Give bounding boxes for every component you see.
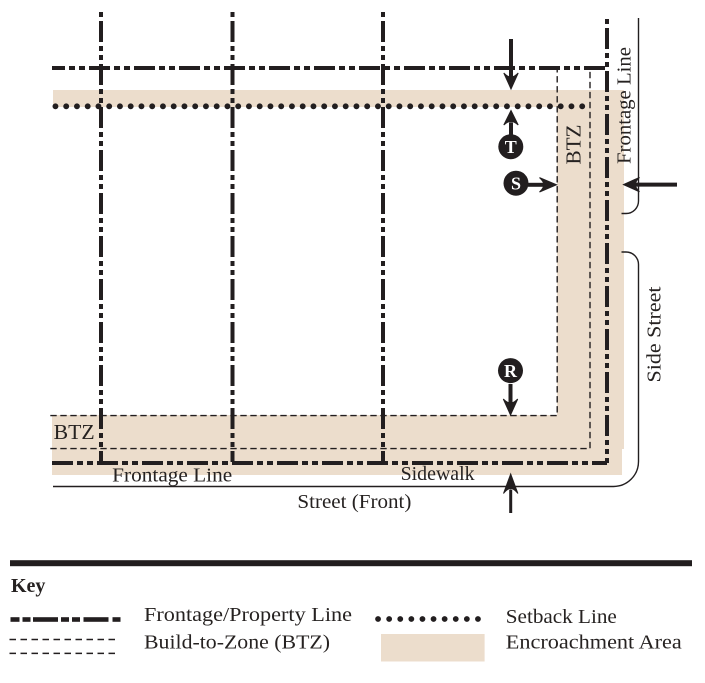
svg-text:R: R [504,361,518,381]
svg-text:Setback Line: Setback Line [506,606,617,628]
svg-text:BTZ: BTZ [54,420,95,444]
svg-text:Build-to-Zone (BTZ): Build-to-Zone (BTZ) [144,632,330,654]
svg-text:Encroachment Area: Encroachment Area [506,632,682,654]
svg-text:Key: Key [11,575,45,597]
svg-text:Frontage Line: Frontage Line [112,465,232,487]
svg-text:Sidewalk: Sidewalk [401,463,475,485]
svg-text:T: T [505,137,517,157]
svg-text:BTZ: BTZ [562,125,586,165]
svg-text:Side Street: Side Street [644,286,666,382]
svg-text:S: S [511,174,521,194]
svg-text:Street (Front): Street (Front) [297,491,411,513]
svg-text:Frontage/Property Line: Frontage/Property Line [144,604,352,626]
svg-text:Frontage Line: Frontage Line [614,47,636,164]
